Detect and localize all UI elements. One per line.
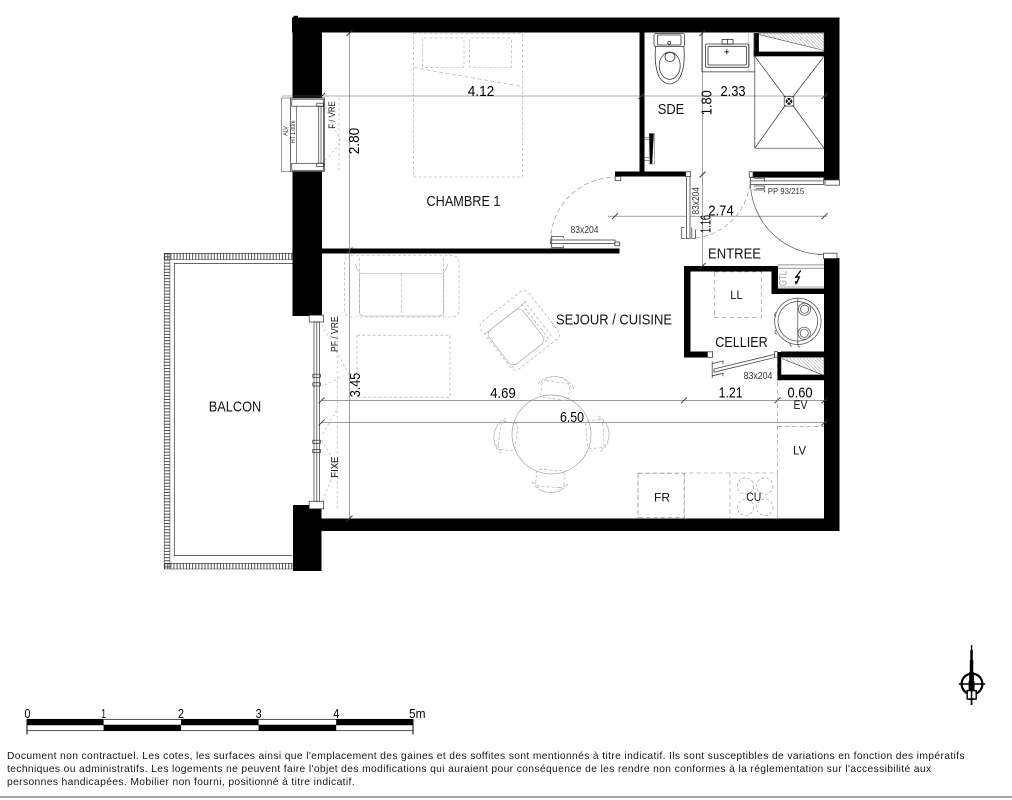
svg-text:EV: EV: [794, 398, 808, 412]
svg-text:5m: 5m: [409, 706, 426, 721]
svg-text:1.21: 1.21: [719, 385, 743, 402]
svg-text:ENTREE: ENTREE: [708, 246, 761, 263]
svg-text:0: 0: [25, 706, 31, 721]
svg-text:SDE: SDE: [658, 101, 685, 118]
svg-text:ALV: ALV: [282, 126, 289, 136]
svg-text:CELLIER: CELLIER: [715, 334, 768, 351]
svg-text:2.74: 2.74: [708, 202, 734, 219]
svg-text:GTL: GTL: [778, 271, 790, 286]
svg-text:LL: LL: [730, 288, 743, 302]
svg-text:2.80: 2.80: [346, 128, 363, 155]
svg-text:83x204: 83x204: [691, 187, 702, 215]
svg-text:83x204: 83x204: [744, 371, 773, 382]
svg-text:3: 3: [256, 706, 262, 721]
svg-text:3.45: 3.45: [347, 373, 364, 398]
svg-text:SEJOUR / CUISINE: SEJOUR / CUISINE: [556, 312, 672, 329]
svg-text:2: 2: [178, 706, 184, 721]
svg-text:FIXE: FIXE: [330, 456, 341, 477]
svg-text:4.12: 4.12: [468, 83, 495, 100]
svg-text:CHAMBRE 1: CHAMBRE 1: [427, 193, 501, 210]
svg-text:4.69: 4.69: [490, 385, 516, 402]
svg-text:FR: FR: [654, 491, 670, 505]
svg-text:2.33: 2.33: [721, 83, 746, 100]
svg-text:PP 93/215: PP 93/215: [768, 187, 805, 196]
svg-text:F / VRE: F / VRE: [327, 101, 337, 129]
svg-text:1.80: 1.80: [699, 90, 716, 115]
svg-text:HT 1.00m: HT 1.00m: [290, 120, 297, 143]
svg-text:4: 4: [333, 706, 339, 721]
svg-text:83x204: 83x204: [571, 225, 599, 236]
svg-text:BALCON: BALCON: [209, 399, 262, 416]
svg-text:1: 1: [101, 706, 106, 721]
svg-text:PF / VRE: PF / VRE: [330, 316, 341, 352]
svg-text:CU: CU: [746, 490, 761, 504]
svg-text:6.50: 6.50: [560, 409, 584, 426]
svg-text:LV: LV: [793, 443, 806, 457]
